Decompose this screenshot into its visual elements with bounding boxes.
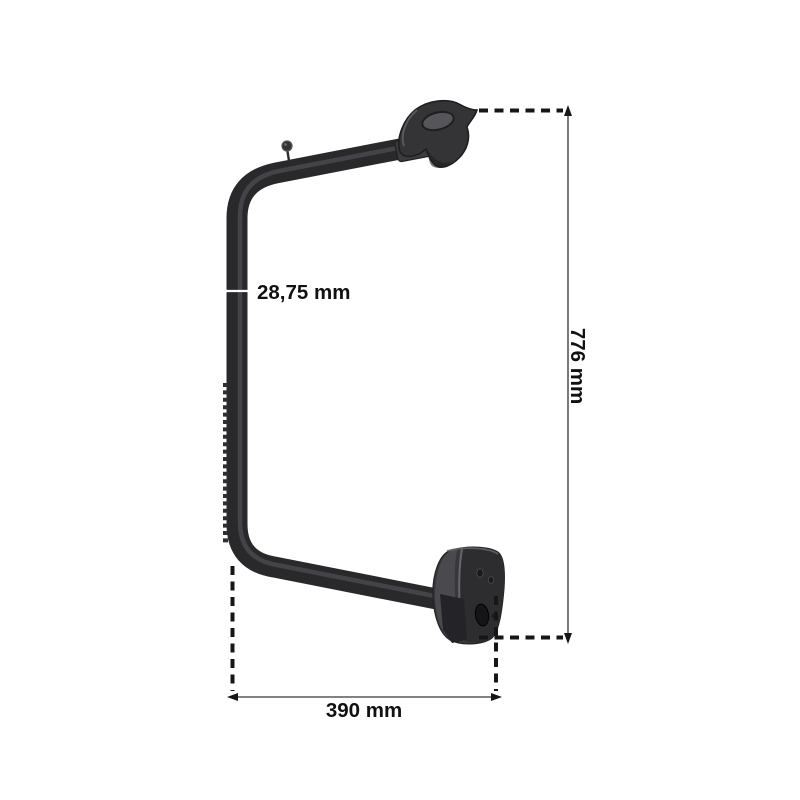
arrow-right-icon <box>491 693 502 701</box>
bottom-mount-plate <box>433 547 504 644</box>
arrow-left-icon <box>227 693 238 701</box>
diameter-dimension-label: 28,75 mm <box>257 281 350 304</box>
screw-head-highlight <box>284 143 287 146</box>
arm-tube <box>237 142 462 604</box>
plate-connector-tab <box>440 594 467 643</box>
diameter-tick-end <box>222 288 227 293</box>
width-dimension-label: 390 mm <box>326 699 402 722</box>
arm-tube-highlight <box>240 140 465 602</box>
width-dimension: 390 mm <box>227 693 502 722</box>
arrow-down-icon <box>564 633 572 644</box>
screw-head <box>282 141 292 151</box>
adjustment-screw <box>282 141 292 161</box>
extension-lines <box>233 111 564 692</box>
product-image-canvas: 776 mm 390 mm 28,75 mm <box>0 0 800 800</box>
arrow-up-icon <box>564 105 572 116</box>
plate-screw-hole-2 <box>488 577 493 584</box>
product-diagram: 776 mm 390 mm 28,75 mm <box>0 0 800 800</box>
height-dimension-label: 776 mm <box>566 328 589 404</box>
mirror-arm <box>226 101 505 644</box>
dimension-annotations: 776 mm 390 mm 28,75 mm <box>222 105 589 722</box>
height-dimension: 776 mm <box>564 105 589 644</box>
plate-screw-hole-1 <box>477 569 483 577</box>
